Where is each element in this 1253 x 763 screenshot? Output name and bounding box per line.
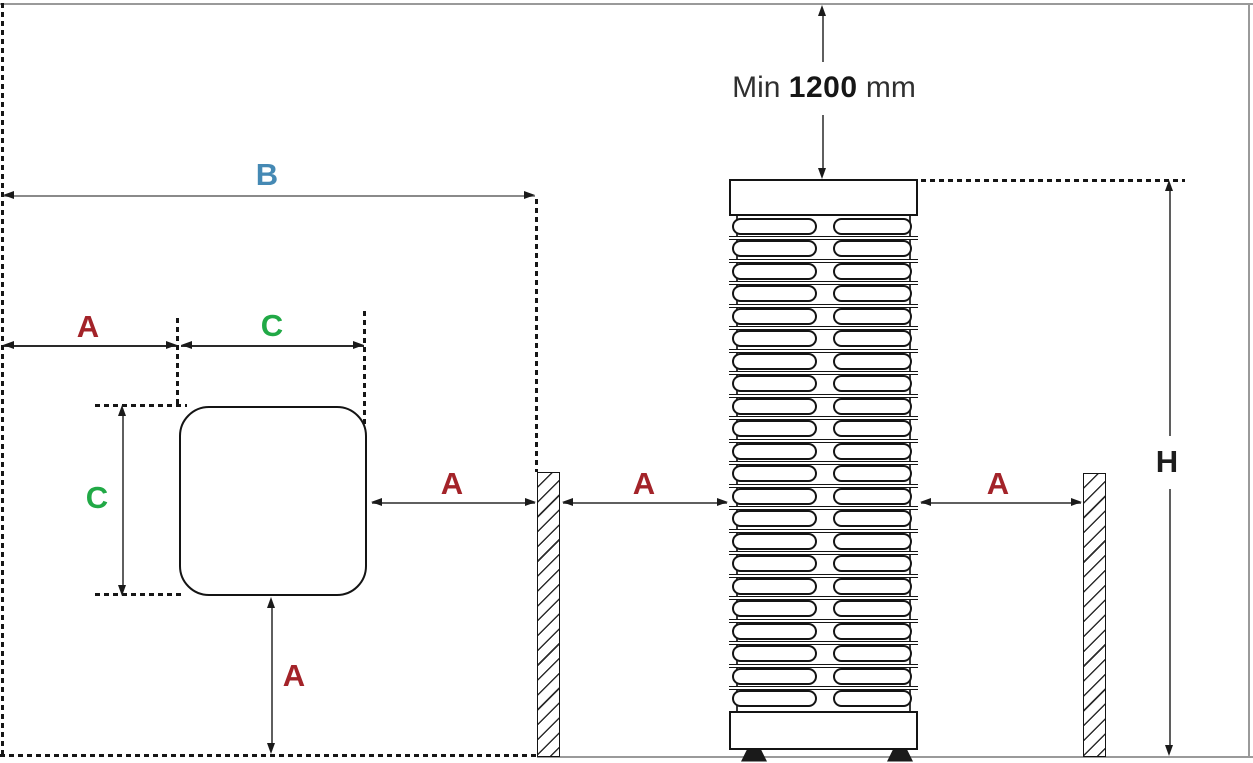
heating-element-right bbox=[833, 578, 912, 595]
arrowhead-right bbox=[717, 498, 728, 506]
dimension-c-label: C bbox=[77, 481, 117, 515]
guide-dashed-line bbox=[921, 179, 1185, 182]
arrowhead-down bbox=[1165, 745, 1173, 756]
heating-element-right bbox=[833, 623, 912, 640]
grille-bar bbox=[729, 596, 918, 600]
dimension-c-label: C bbox=[252, 309, 292, 343]
dimension-a-label: A bbox=[68, 310, 108, 344]
arrowhead-right bbox=[1071, 498, 1082, 506]
dimension-b-line bbox=[4, 195, 535, 197]
grille-bar bbox=[729, 416, 918, 420]
arrowhead-left bbox=[3, 341, 14, 349]
dimension-a-line bbox=[4, 345, 176, 347]
arrowhead-left bbox=[3, 191, 14, 199]
heating-element-right bbox=[833, 443, 912, 460]
heating-element-left bbox=[732, 263, 817, 280]
min-clearance-value: 1200 bbox=[789, 71, 858, 104]
grille-bar bbox=[729, 259, 918, 263]
heating-element-right bbox=[833, 308, 912, 325]
heating-element-left bbox=[732, 353, 817, 370]
grille-bar bbox=[729, 664, 918, 668]
heating-element-right bbox=[833, 488, 912, 505]
min-clearance-line-lower bbox=[822, 115, 824, 169]
arrowhead-left bbox=[562, 498, 573, 506]
heater-footprint-top-view bbox=[179, 406, 367, 596]
ceiling-line bbox=[0, 3, 1253, 5]
heating-element-left bbox=[732, 465, 817, 482]
dimension-c-line-vertical bbox=[122, 413, 124, 585]
dimension-h-line-upper bbox=[1169, 190, 1171, 436]
arrowhead-right bbox=[524, 191, 535, 199]
arrowhead-down bbox=[818, 168, 826, 179]
guide-dashed-line bbox=[535, 199, 538, 472]
heating-element-left bbox=[732, 308, 817, 325]
grille-bar bbox=[729, 281, 918, 285]
guide-dashed-line bbox=[176, 318, 179, 406]
heater-foot-left bbox=[741, 750, 767, 762]
left-wall-dashed-line bbox=[1, 3, 4, 755]
dimension-h-line-lower bbox=[1169, 489, 1171, 746]
heating-element-left bbox=[732, 578, 817, 595]
heater-bottom-cap bbox=[729, 711, 918, 750]
grille-bar bbox=[729, 529, 918, 533]
arrowhead-down bbox=[267, 743, 275, 754]
dimension-h-label: H bbox=[1147, 445, 1187, 479]
arrowhead-down bbox=[118, 585, 126, 596]
right-boundary-line bbox=[1248, 3, 1250, 757]
heating-element-left bbox=[732, 420, 817, 437]
heating-element-right bbox=[833, 330, 912, 347]
arrowhead-left bbox=[181, 341, 192, 349]
installation-clearance-diagram: Min 1200 mm B A C C A A A A bbox=[0, 0, 1253, 763]
dimension-a-line bbox=[563, 502, 727, 504]
bottom-dashed-line bbox=[0, 754, 537, 757]
heating-element-right bbox=[833, 668, 912, 685]
grille-bar bbox=[729, 371, 918, 375]
min-clearance-note: Min 1200 mm bbox=[699, 71, 949, 105]
grille-bar bbox=[729, 326, 918, 330]
heating-element-right bbox=[833, 555, 912, 572]
arrowhead-up bbox=[118, 405, 126, 416]
heating-element-left bbox=[732, 600, 817, 617]
dimension-a-label: A bbox=[274, 659, 314, 693]
grille-bar bbox=[729, 349, 918, 353]
grille-bar bbox=[729, 686, 918, 690]
heating-element-right bbox=[833, 240, 912, 257]
guide-dashed-line bbox=[95, 593, 183, 596]
grille-bar bbox=[729, 394, 918, 398]
heating-element-left bbox=[732, 443, 817, 460]
heater-foot-right bbox=[887, 750, 913, 762]
grille-bar bbox=[729, 641, 918, 645]
heating-element-right bbox=[833, 510, 912, 527]
dimension-b-label: B bbox=[247, 158, 287, 192]
heating-element-left bbox=[732, 240, 817, 257]
grille-bar bbox=[729, 619, 918, 623]
grille-bar bbox=[729, 461, 918, 465]
grille-bar bbox=[729, 551, 918, 555]
heating-element-left bbox=[732, 488, 817, 505]
heating-element-right bbox=[833, 420, 912, 437]
heating-element-left bbox=[732, 533, 817, 550]
min-clearance-line-upper bbox=[822, 15, 824, 62]
grille-bar bbox=[729, 439, 918, 443]
heating-element-right bbox=[833, 600, 912, 617]
heater-top-cap bbox=[729, 179, 918, 216]
dimension-c-line bbox=[181, 345, 364, 347]
heating-element-left bbox=[732, 555, 817, 572]
heating-element-right bbox=[833, 285, 912, 302]
dimension-a-label: A bbox=[432, 467, 472, 501]
guide-dashed-line bbox=[95, 404, 187, 407]
wall-section-right bbox=[1083, 473, 1106, 757]
heating-element-left bbox=[732, 623, 817, 640]
dimension-a-label: A bbox=[624, 467, 664, 501]
heating-element-left bbox=[732, 398, 817, 415]
heater-tower bbox=[729, 179, 918, 762]
arrowhead-right bbox=[525, 498, 536, 506]
dimension-a-line bbox=[921, 502, 1081, 504]
heating-element-right bbox=[833, 398, 912, 415]
grille-bar bbox=[729, 506, 918, 510]
heating-element-left bbox=[732, 218, 817, 235]
heating-element-right bbox=[833, 465, 912, 482]
heating-element-left bbox=[732, 330, 817, 347]
heating-element-left bbox=[732, 375, 817, 392]
grille-bar bbox=[729, 574, 918, 578]
grille-bar bbox=[729, 484, 918, 488]
arrowhead-left bbox=[920, 498, 931, 506]
heating-element-left bbox=[732, 645, 817, 662]
heating-element-right bbox=[833, 375, 912, 392]
heating-element-right bbox=[833, 353, 912, 370]
min-clearance-prefix: Min bbox=[732, 71, 780, 104]
arrowhead-left bbox=[371, 498, 382, 506]
heating-element-left bbox=[732, 285, 817, 302]
arrowhead-up bbox=[818, 5, 826, 16]
dimension-a-line bbox=[372, 502, 535, 504]
heating-element-left bbox=[732, 510, 817, 527]
wall-section-left bbox=[537, 472, 560, 757]
grille-bar bbox=[729, 236, 918, 240]
arrowhead-up bbox=[1165, 180, 1173, 191]
grille-bar bbox=[729, 304, 918, 308]
heating-element-right bbox=[833, 533, 912, 550]
arrowhead-up bbox=[267, 597, 275, 608]
heating-element-right bbox=[833, 218, 912, 235]
heating-element-right bbox=[833, 690, 912, 707]
min-clearance-unit: mm bbox=[866, 71, 916, 104]
heating-element-left bbox=[732, 668, 817, 685]
heating-element-left bbox=[732, 690, 817, 707]
dimension-a-line-vertical bbox=[271, 606, 273, 746]
heating-element-right bbox=[833, 645, 912, 662]
heating-element-right bbox=[833, 263, 912, 280]
dimension-a-label: A bbox=[978, 467, 1018, 501]
